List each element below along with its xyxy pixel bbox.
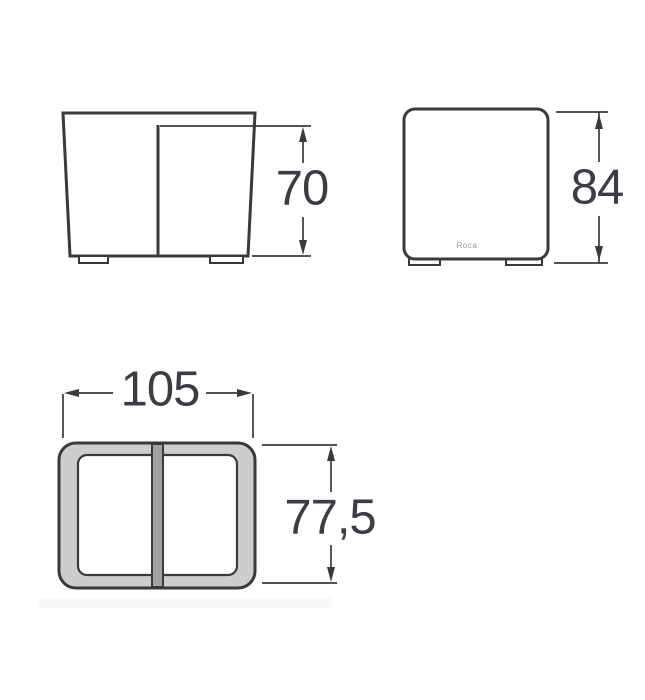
dim-84-arrow-down-icon [595, 246, 603, 261]
brand-logo-text: Roca [457, 242, 478, 250]
drawing-linework [0, 0, 645, 700]
dim-77-5-arrow-down-icon [327, 567, 335, 582]
front-view-right-foot [210, 256, 243, 263]
dim-105-arrow-left-icon [64, 389, 79, 397]
dimension-label-depth-77-5: 77,5 [281, 494, 378, 543]
drawing-canvas: 70 84 105 77,5 Roca [0, 0, 645, 700]
faint-watermark-artifact [38, 598, 333, 608]
front-view [63, 113, 255, 263]
dim-70-arrow-down-icon [299, 240, 307, 255]
dim-84-arrow-up-icon [595, 114, 603, 129]
side-view-body-outline [404, 109, 548, 259]
dim-105-arrow-right-icon [237, 389, 252, 397]
plan-view [59, 443, 255, 588]
dimension-label-height-84: 84 [568, 164, 627, 213]
dimension-label-width-105: 105 [118, 366, 203, 415]
front-view-left-foot [79, 256, 108, 263]
plan-view-center-divider-bar [152, 444, 163, 587]
dim-77-5-arrow-up-icon [327, 446, 335, 461]
dimension-label-height-70: 70 [273, 165, 332, 214]
dim-70-arrow-up-icon [299, 127, 307, 142]
